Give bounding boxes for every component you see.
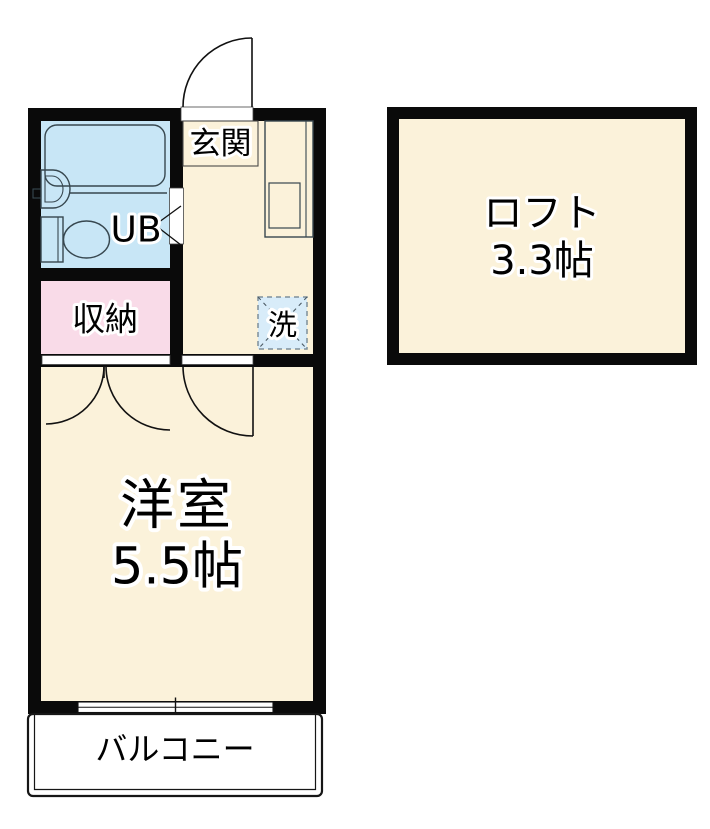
- main-room-label: 洋室: [120, 474, 234, 537]
- entrance-door-arc: [183, 38, 252, 107]
- loft-label: ロフト: [483, 192, 600, 237]
- storage-opening: [42, 356, 170, 365]
- floorplan: 玄関 UB 収納 洗 洋室 5.5帖 バルコニー ロフト 3.3帖: [0, 0, 710, 829]
- room-door-opening: [182, 356, 253, 365]
- entrance-door-swing: [183, 38, 252, 107]
- balcony-label: バルコニー: [95, 730, 254, 768]
- loft-size: 3.3帖: [490, 238, 594, 284]
- laundry-label: 洗: [268, 308, 297, 342]
- unit-bath-door-opening: [170, 188, 184, 244]
- unit-bath-label: UB: [110, 210, 161, 251]
- main-room-size: 5.5帖: [111, 538, 243, 597]
- storage-label: 収納: [72, 300, 138, 339]
- entrance-label: 玄関: [190, 126, 252, 162]
- entrance-opening: [181, 107, 253, 121]
